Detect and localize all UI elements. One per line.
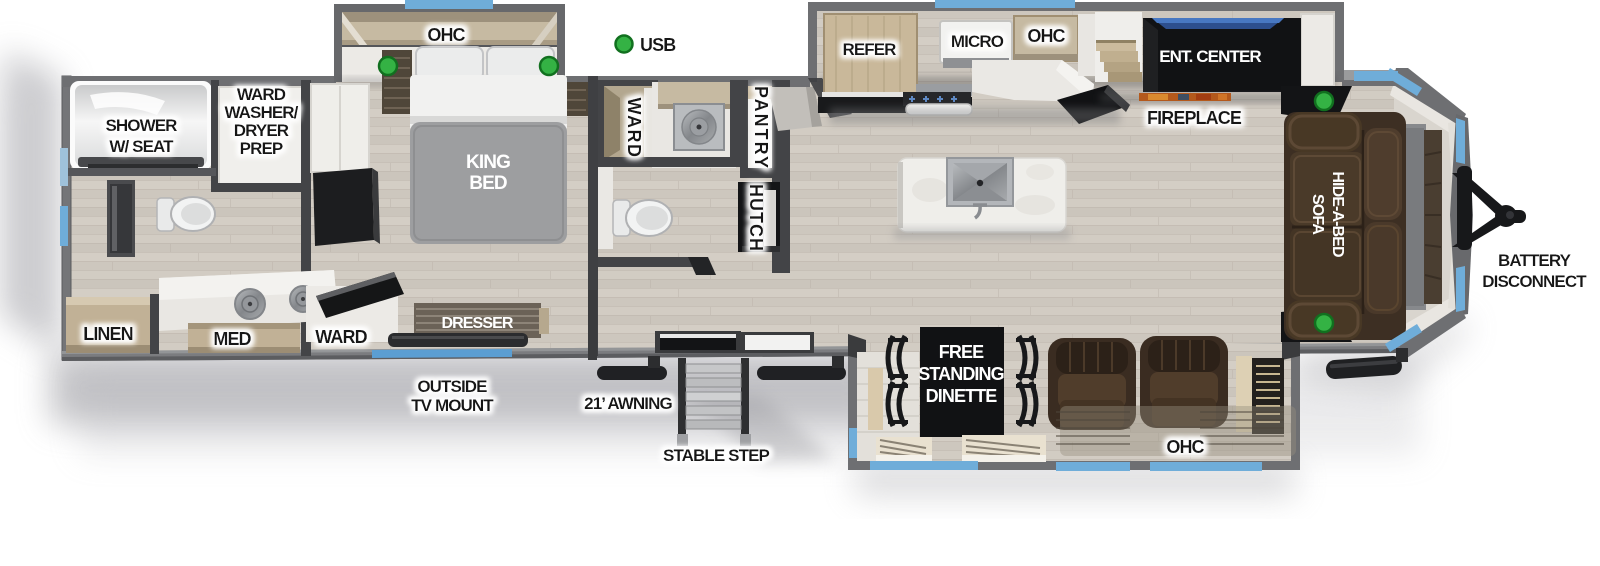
svg-text:OHC: OHC <box>1166 437 1204 457</box>
svg-text:TV MOUNT: TV MOUNT <box>411 396 494 415</box>
svg-text:SOFA: SOFA <box>1309 194 1326 235</box>
svg-text:OHC: OHC <box>427 25 465 45</box>
svg-text:PREP: PREP <box>240 139 283 158</box>
svg-text:MICRO: MICRO <box>951 32 1004 51</box>
svg-text:FIREPLACE: FIREPLACE <box>1147 108 1242 128</box>
svg-text:HUTCH: HUTCH <box>746 184 766 252</box>
svg-text:WASHER/: WASHER/ <box>224 103 298 122</box>
svg-text:PANTRY: PANTRY <box>751 86 771 170</box>
svg-text:SHOWER: SHOWER <box>105 116 177 135</box>
svg-text:WARD: WARD <box>237 85 286 104</box>
svg-text:OUTSIDE: OUTSIDE <box>417 377 487 396</box>
svg-text:OHC: OHC <box>1027 26 1065 46</box>
svg-text:BED: BED <box>469 173 507 194</box>
svg-text:WARD: WARD <box>624 98 644 159</box>
svg-text:STANDING: STANDING <box>918 364 1003 384</box>
svg-text:ENT. CENTER: ENT. CENTER <box>1159 47 1261 66</box>
svg-text:KING: KING <box>466 152 510 173</box>
svg-text:WARD: WARD <box>315 327 367 347</box>
svg-text:DINETTE: DINETTE <box>926 386 998 406</box>
svg-text:DISCONNECT: DISCONNECT <box>1482 272 1587 291</box>
svg-text:LINEN: LINEN <box>83 324 133 344</box>
svg-text:MED: MED <box>213 329 251 349</box>
svg-text:W/ SEAT: W/ SEAT <box>109 137 174 156</box>
svg-text:REFER: REFER <box>842 40 896 59</box>
svg-text:HIDE-A-BED: HIDE-A-BED <box>1329 171 1346 257</box>
svg-text:21’ AWNING: 21’ AWNING <box>584 394 672 413</box>
svg-text:STABLE STEP: STABLE STEP <box>663 446 770 465</box>
svg-text:BATTERY: BATTERY <box>1498 251 1572 270</box>
svg-text:DRYER: DRYER <box>234 121 289 140</box>
svg-text:FREE: FREE <box>939 342 984 362</box>
svg-text:USB: USB <box>640 35 676 55</box>
svg-text:DRESSER: DRESSER <box>441 315 513 332</box>
